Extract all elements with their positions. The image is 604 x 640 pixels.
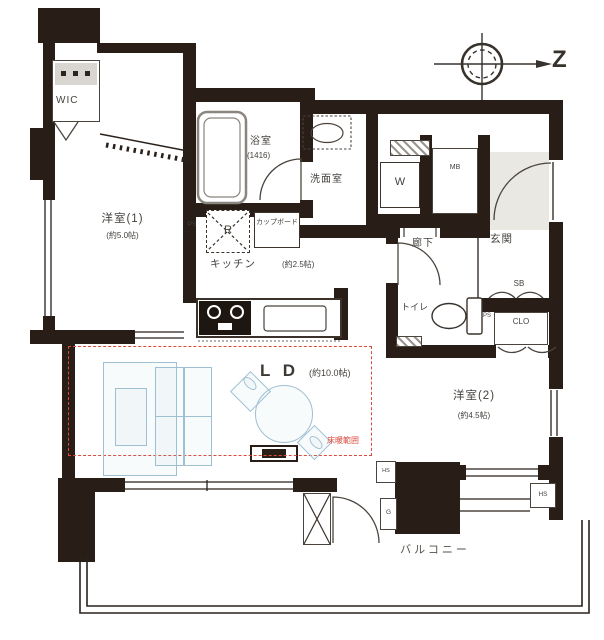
wic-label: WIC xyxy=(56,95,78,106)
shoebox-label: SB xyxy=(490,280,548,289)
washer-label: W xyxy=(380,176,420,188)
room1-label: 洋室(1) xyxy=(70,213,175,226)
ps-label-kitchen: PS xyxy=(188,222,196,229)
cupboard-label: カップボード xyxy=(255,219,299,228)
kitchen-sink xyxy=(264,306,326,331)
floor-heating-label: 床暖範囲 xyxy=(327,437,359,446)
hs-left-label: HS xyxy=(376,468,396,474)
bathtub xyxy=(198,112,246,203)
vanity-basin xyxy=(303,116,351,149)
balcony-label: バルコニー xyxy=(350,544,520,556)
kitchen-label: キッチン xyxy=(210,259,256,271)
gas-label: G xyxy=(380,509,397,516)
floor-plan: Z WIC 洋室(1) (約5.0帖) 浴室 (1416) 洗面室 W MB 玄… xyxy=(0,0,604,640)
sloped-ceiling-line xyxy=(100,134,193,152)
balcony-rail xyxy=(80,520,589,613)
toilet-door-ticks xyxy=(404,228,436,237)
ld-size: (約10.0帖) xyxy=(309,368,351,378)
bath-label: 浴室 xyxy=(250,136,272,147)
wash-label: 洗面室 xyxy=(310,174,343,185)
genkan-label: 玄関 xyxy=(490,234,513,246)
balcony-door-arc xyxy=(333,497,379,543)
room1-size: (約5.0帖) xyxy=(70,232,175,241)
bath-door-arc xyxy=(260,159,301,200)
bath-size: (1416) xyxy=(247,152,270,161)
closet-doors xyxy=(498,347,556,353)
stove-burners xyxy=(208,306,243,330)
sloped-ceiling-hatch xyxy=(106,145,191,161)
ps-label-toilet: PS xyxy=(483,313,491,320)
hall-label: 廊下 xyxy=(412,238,434,249)
fridge-label: R xyxy=(206,224,250,236)
ld-door-arc xyxy=(398,243,440,285)
hs-right-label: HS xyxy=(530,491,556,498)
compass-icon xyxy=(434,33,552,100)
room2-label: 洋室(2) xyxy=(418,390,530,403)
entrance-door-arc xyxy=(494,163,551,220)
kitchen-size: (約2.5帖) xyxy=(282,261,314,270)
compass-north-label: Z xyxy=(552,47,567,74)
closet-label: CLO xyxy=(494,318,548,327)
shoebox-doors xyxy=(489,292,543,298)
toilet-bowl xyxy=(432,298,482,334)
wic-door xyxy=(54,122,78,140)
room2-size: (約4.5帖) xyxy=(418,412,530,421)
ld-label: L D xyxy=(260,361,299,380)
hatch-cross xyxy=(304,494,330,544)
toilet-label: トイレ xyxy=(401,302,428,312)
meter-box-label: MB xyxy=(432,164,478,172)
